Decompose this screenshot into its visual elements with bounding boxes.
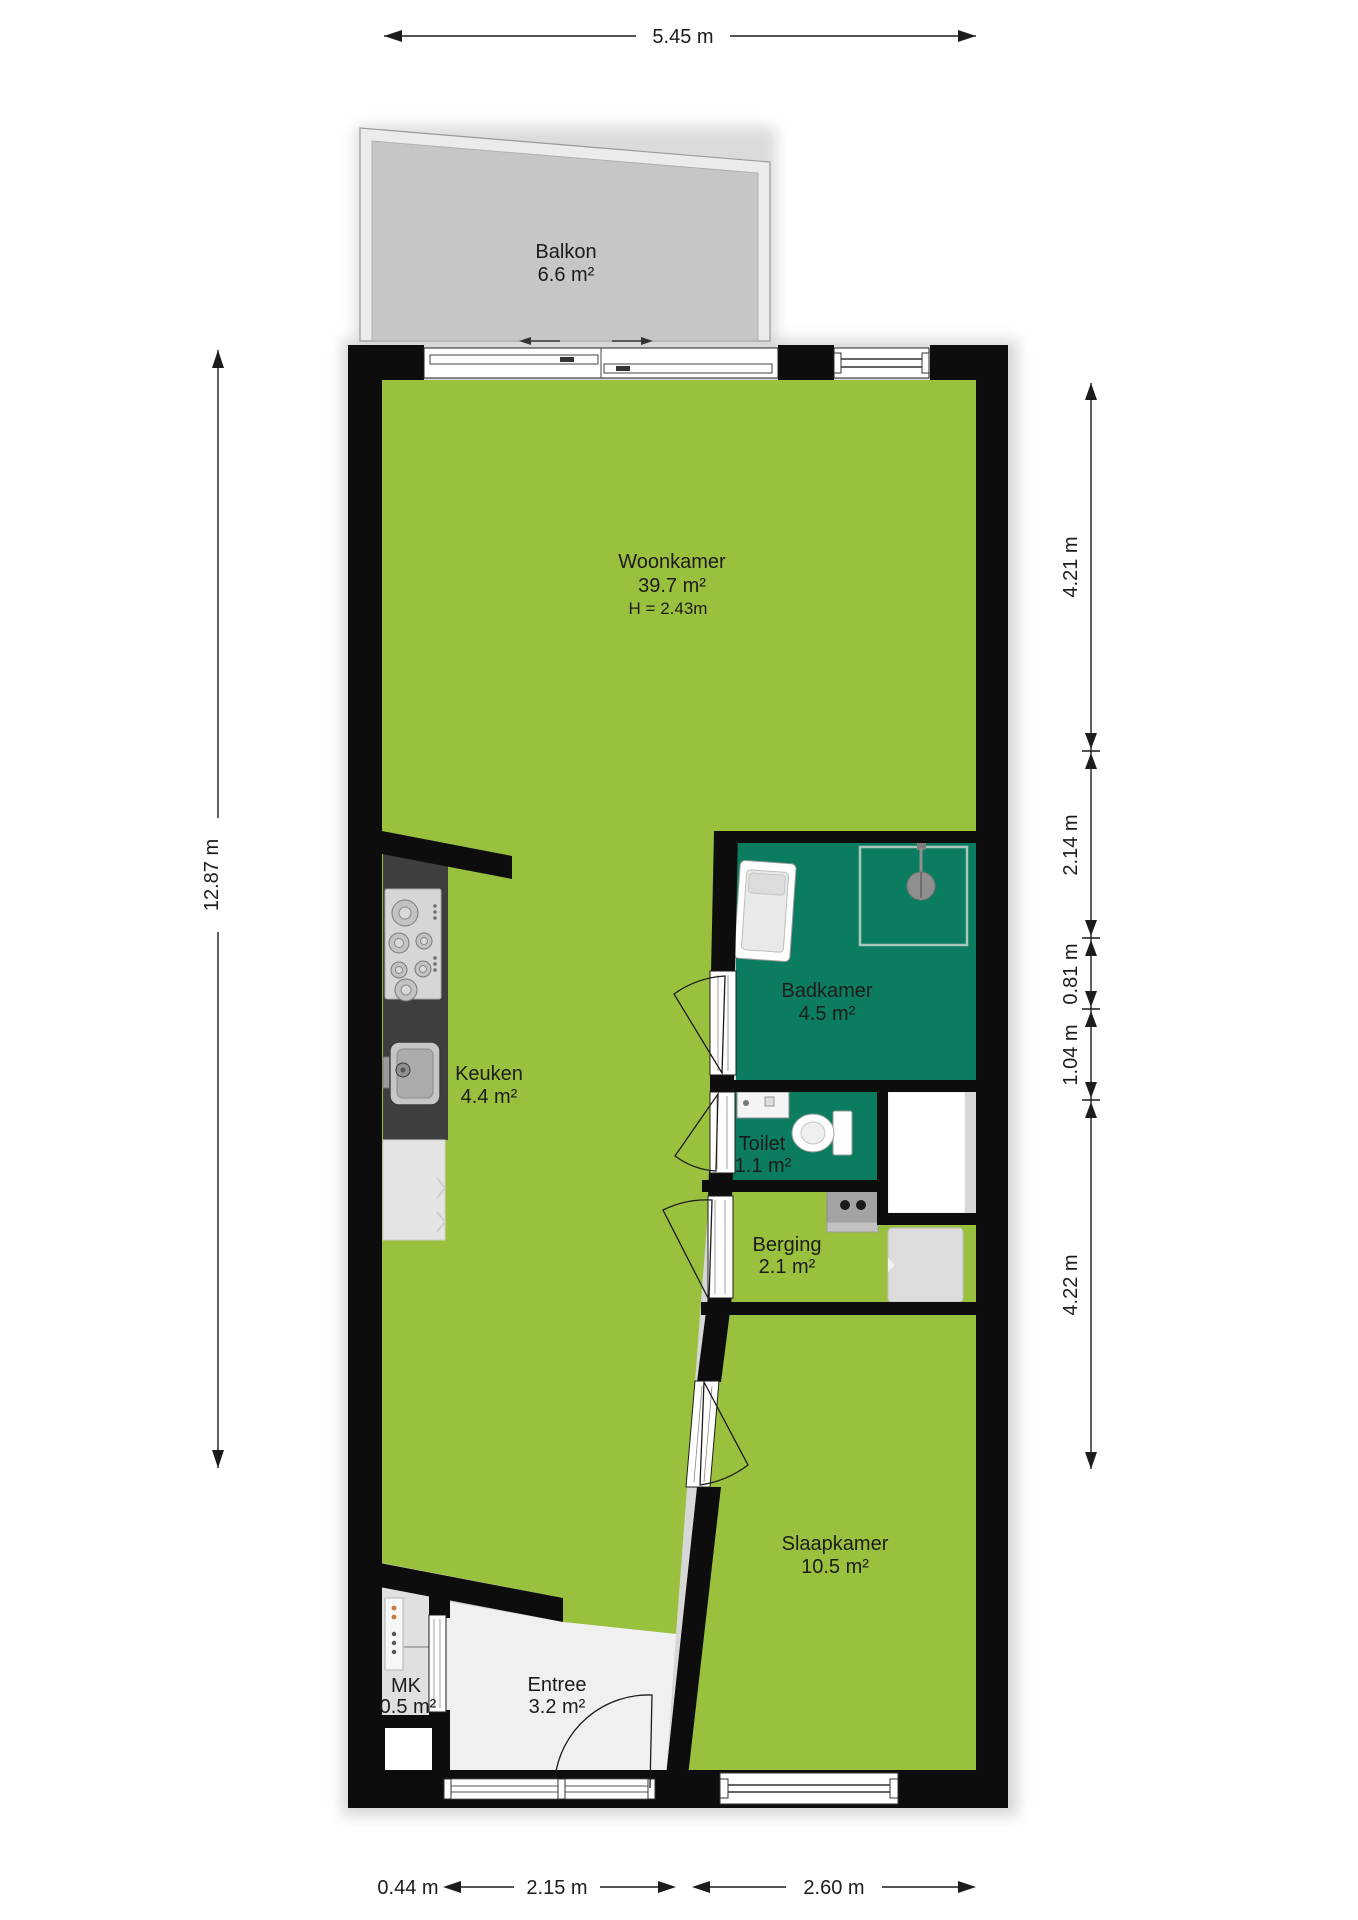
slaapkamer-label: Slaapkamer	[782, 1533, 889, 1555]
wall-shaft-left	[877, 1082, 888, 1225]
dim-bottom-3: 2.60 m	[803, 1877, 864, 1899]
keuken-label: Keuken	[455, 1063, 523, 1085]
balkon-label: Balkon	[535, 241, 596, 263]
dim-right-5: 4.22 m	[1060, 1254, 1082, 1315]
toilet-door	[710, 1092, 735, 1173]
toilet-area: 1.1 m²	[735, 1155, 792, 1177]
dimension-bottom: 0.44 m 2.15 m 2.60 m	[377, 1877, 976, 1899]
wall-niche	[385, 1728, 432, 1770]
dimension-left: 12.87 m	[201, 350, 224, 1468]
wall-window-bottom-edge	[720, 1804, 898, 1808]
kitchen-block	[383, 853, 448, 1240]
dim-right-1: 4.21 m	[1060, 536, 1082, 597]
floorplan-page: Balkon 6.6 m²	[0, 0, 1358, 1920]
sink-icon	[383, 1042, 440, 1105]
wall-entree-sill-top	[444, 1770, 655, 1779]
keuken-area: 4.4 m²	[461, 1086, 518, 1108]
wall-top-right	[930, 345, 1008, 380]
window-icon	[834, 348, 929, 378]
dim-top-width: 5.45 m	[652, 26, 713, 48]
badkamer-label: Badkamer	[781, 980, 872, 1002]
wall-hall-seg1	[711, 831, 738, 973]
balcony: Balkon 6.6 m²	[360, 128, 770, 341]
balkon-area: 6.6 m²	[538, 264, 595, 286]
top-window	[834, 348, 929, 378]
toilet-bowl-icon	[792, 1111, 852, 1155]
wall-slaapkamer-top	[701, 1302, 976, 1315]
mk-area: 0.5 m²	[380, 1696, 437, 1718]
wall-bottom-right	[898, 1770, 1008, 1808]
dim-right-2: 2.14 m	[1060, 814, 1082, 875]
window-icon	[720, 1773, 898, 1804]
badkamer-area: 4.5 m²	[799, 1003, 856, 1025]
wall-shaft-bottom	[877, 1213, 976, 1225]
woonkamer-label: Woonkamer	[618, 551, 726, 573]
tall-cabinet-icon	[383, 1140, 445, 1240]
wall-hall-seg3	[708, 1171, 733, 1198]
dim-right-3: 0.81 m	[1060, 943, 1082, 1004]
dim-bottom-2: 2.15 m	[526, 1877, 587, 1899]
wall-top-pier	[778, 345, 834, 380]
wall-badkamer-top	[714, 831, 976, 843]
entree-threshold	[444, 1779, 655, 1799]
dim-bottom-1: 0.44 m	[377, 1877, 438, 1899]
boiler-icon	[827, 1188, 878, 1232]
washbasin-icon	[737, 1092, 789, 1118]
wall-top-left	[348, 345, 424, 380]
washing-machine-icon	[888, 1228, 963, 1302]
woonkamer-height: H = 2.43m	[629, 599, 708, 618]
bedroom-window	[720, 1773, 898, 1804]
entree-area: 3.2 m²	[529, 1696, 586, 1718]
service-shaft	[888, 1092, 965, 1213]
dimension-top: 5.45 m	[384, 26, 976, 48]
dim-left-height: 12.87 m	[201, 839, 223, 911]
toilet-label: Toilet	[739, 1133, 786, 1155]
slaapkamer-area: 10.5 m²	[801, 1556, 869, 1578]
berging-area: 2.1 m²	[759, 1256, 816, 1278]
wall-bottom-mid	[655, 1770, 720, 1808]
woonkamer-area: 39.7 m²	[638, 575, 706, 597]
wall-left	[348, 345, 382, 1808]
berging-label: Berging	[753, 1234, 822, 1256]
wall-hall-seg2	[710, 1073, 734, 1094]
bathtub-icon	[734, 860, 797, 962]
dim-right-4: 1.04 m	[1060, 1024, 1082, 1085]
wall-toilet-top	[714, 1080, 976, 1092]
entree-label: Entree	[528, 1674, 587, 1696]
wall-entree-sill-bottom	[444, 1799, 655, 1808]
mk-label: MK	[391, 1675, 422, 1697]
dimension-right: 4.21 m 2.14 m 0.81 m 1.04 m 4.22 m	[1060, 383, 1100, 1469]
stove-icon	[385, 889, 441, 1001]
wall-right	[976, 345, 1008, 1808]
floorplan-canvas: Balkon 6.6 m²	[0, 0, 1358, 1920]
